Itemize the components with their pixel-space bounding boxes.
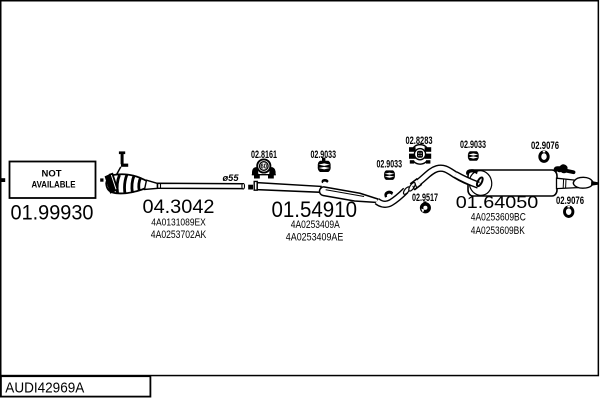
svg-text:02.9076: 02.9076 bbox=[556, 195, 584, 207]
svg-text:AVAILABLE: AVAILABLE bbox=[32, 179, 76, 190]
svg-text:4A0253409A: 4A0253409A bbox=[291, 219, 341, 231]
svg-text:AUDI42969A: AUDI42969A bbox=[5, 380, 84, 397]
svg-text:4A0253409AE: 4A0253409AE bbox=[286, 232, 344, 244]
svg-text:02.9076: 02.9076 bbox=[531, 140, 559, 152]
svg-text:60: 60 bbox=[261, 164, 268, 171]
svg-text:02.9033: 02.9033 bbox=[460, 139, 486, 151]
svg-text:04.3042: 04.3042 bbox=[143, 196, 215, 218]
svg-text:01.99930: 01.99930 bbox=[11, 200, 94, 224]
svg-text:02.9033: 02.9033 bbox=[377, 158, 403, 170]
svg-text:4A0253609BK: 4A0253609BK bbox=[471, 225, 526, 237]
svg-text:4A0131089EX: 4A0131089EX bbox=[151, 217, 206, 229]
svg-text:4A0253702AK: 4A0253702AK bbox=[151, 229, 207, 241]
svg-text:NOT: NOT bbox=[42, 169, 62, 180]
svg-text:ø55: ø55 bbox=[223, 173, 240, 184]
svg-text:4A0253609BC: 4A0253609BC bbox=[471, 212, 526, 224]
svg-text:01.64050: 01.64050 bbox=[456, 192, 539, 212]
